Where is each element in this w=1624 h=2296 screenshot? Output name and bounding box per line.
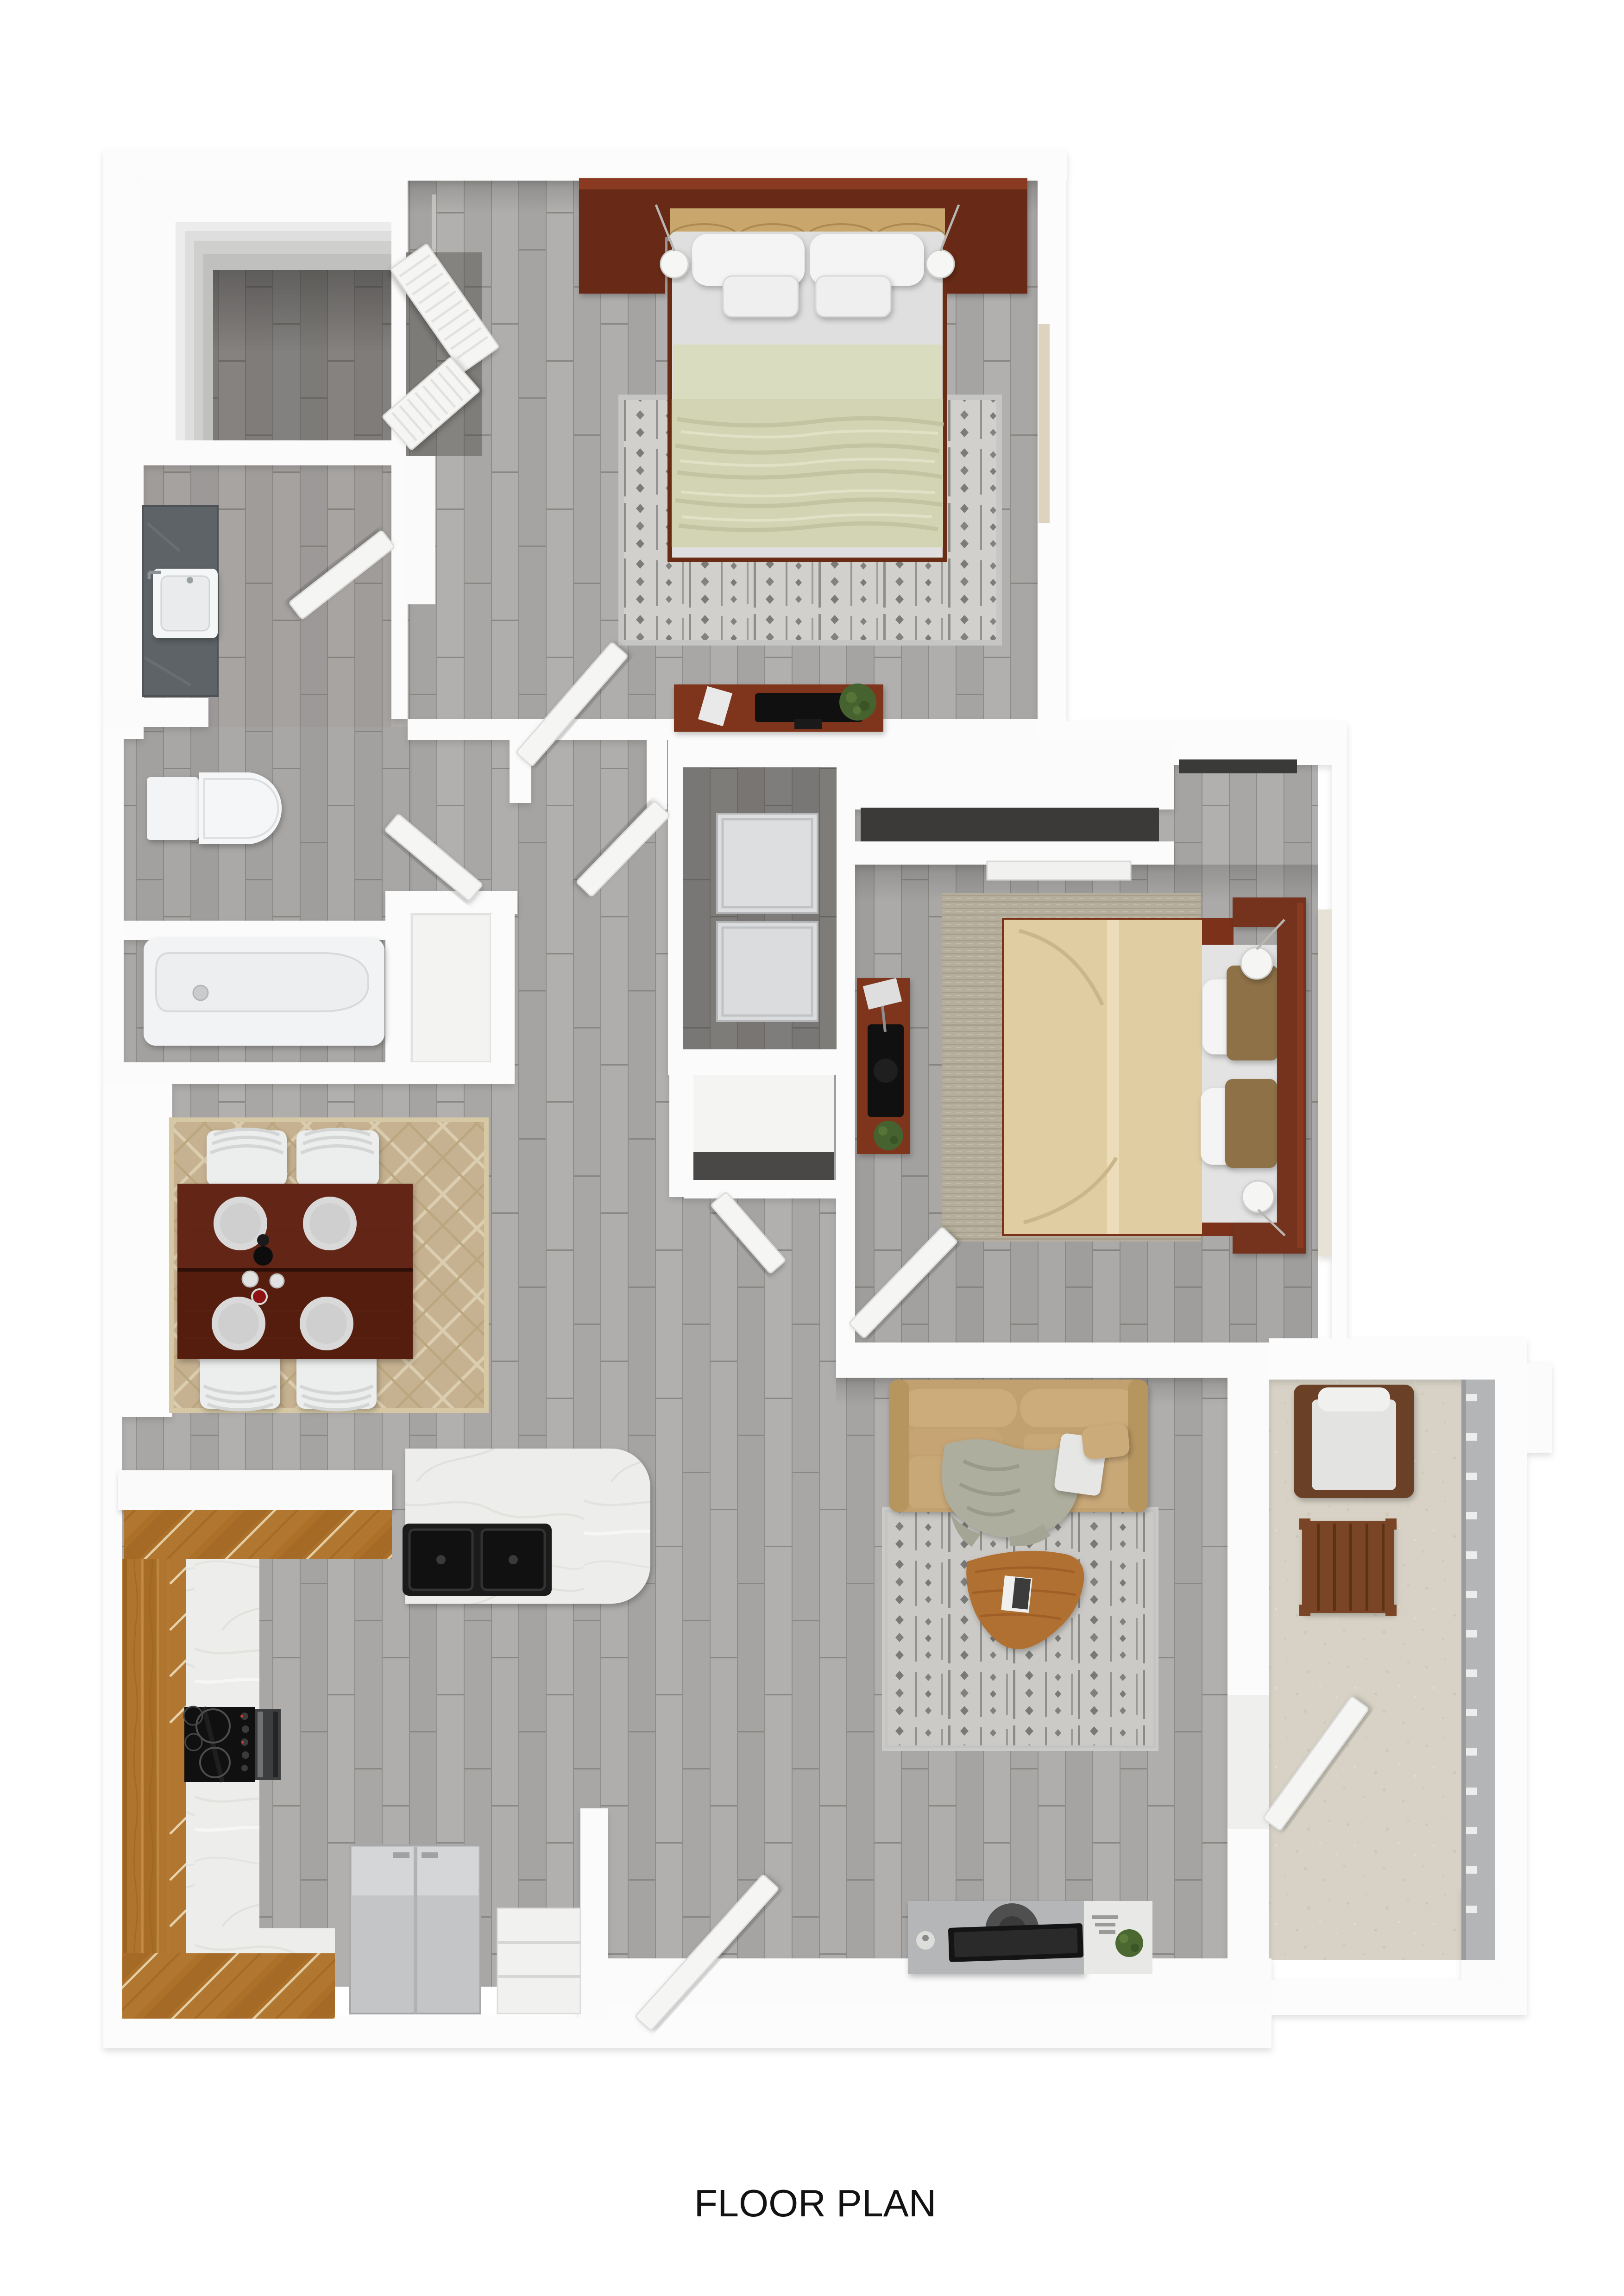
- svg-text:FLOOR PLAN: FLOOR PLAN: [694, 2182, 937, 2225]
